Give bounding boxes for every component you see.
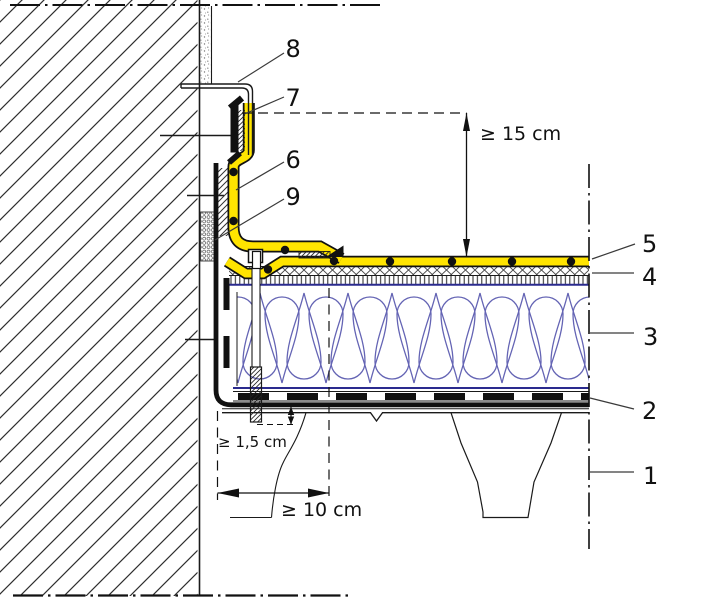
callout-membrane-upstand: 6 — [286, 146, 301, 174]
callout-deck: 1 — [643, 462, 658, 490]
dim-fastener-projection-text: ≥ 1,5 cm — [218, 433, 287, 451]
mortar-hatch-strip — [218, 168, 230, 236]
callout-cap-flashing: 8 — [286, 35, 301, 63]
dim-upstand-height-text: ≥ 15 cm — [480, 123, 561, 145]
membrane-upstand — [234, 103, 342, 259]
callout-roof-membrane: 5 — [642, 230, 657, 258]
screw-head — [253, 252, 261, 269]
ribbed-deck — [222, 413, 589, 518]
callout-separation-layer: 4 — [642, 263, 657, 291]
callout-clamping-rail: 7 — [286, 84, 301, 112]
plaster-strip — [201, 6, 212, 84]
screw-shank — [251, 367, 262, 422]
masonry-wall-hatch — [0, 0, 200, 596]
detail-drawing: ≥ 15 cm ≥ 1,5 cm ≥ 10 cm 8 7 6 9 5 4 3 2… — [0, 0, 703, 604]
separation-layer-band — [229, 267, 589, 285]
backing-strip-block — [201, 212, 215, 261]
insulation-layer — [233, 290, 589, 388]
dim-overlap-width-text: ≥ 10 cm — [281, 499, 362, 521]
callout-backing-strip: 9 — [286, 183, 301, 211]
callout-insulation: 3 — [643, 323, 658, 351]
sealant-strip — [239, 110, 246, 151]
callout-vapour-barrier: 2 — [642, 397, 657, 425]
